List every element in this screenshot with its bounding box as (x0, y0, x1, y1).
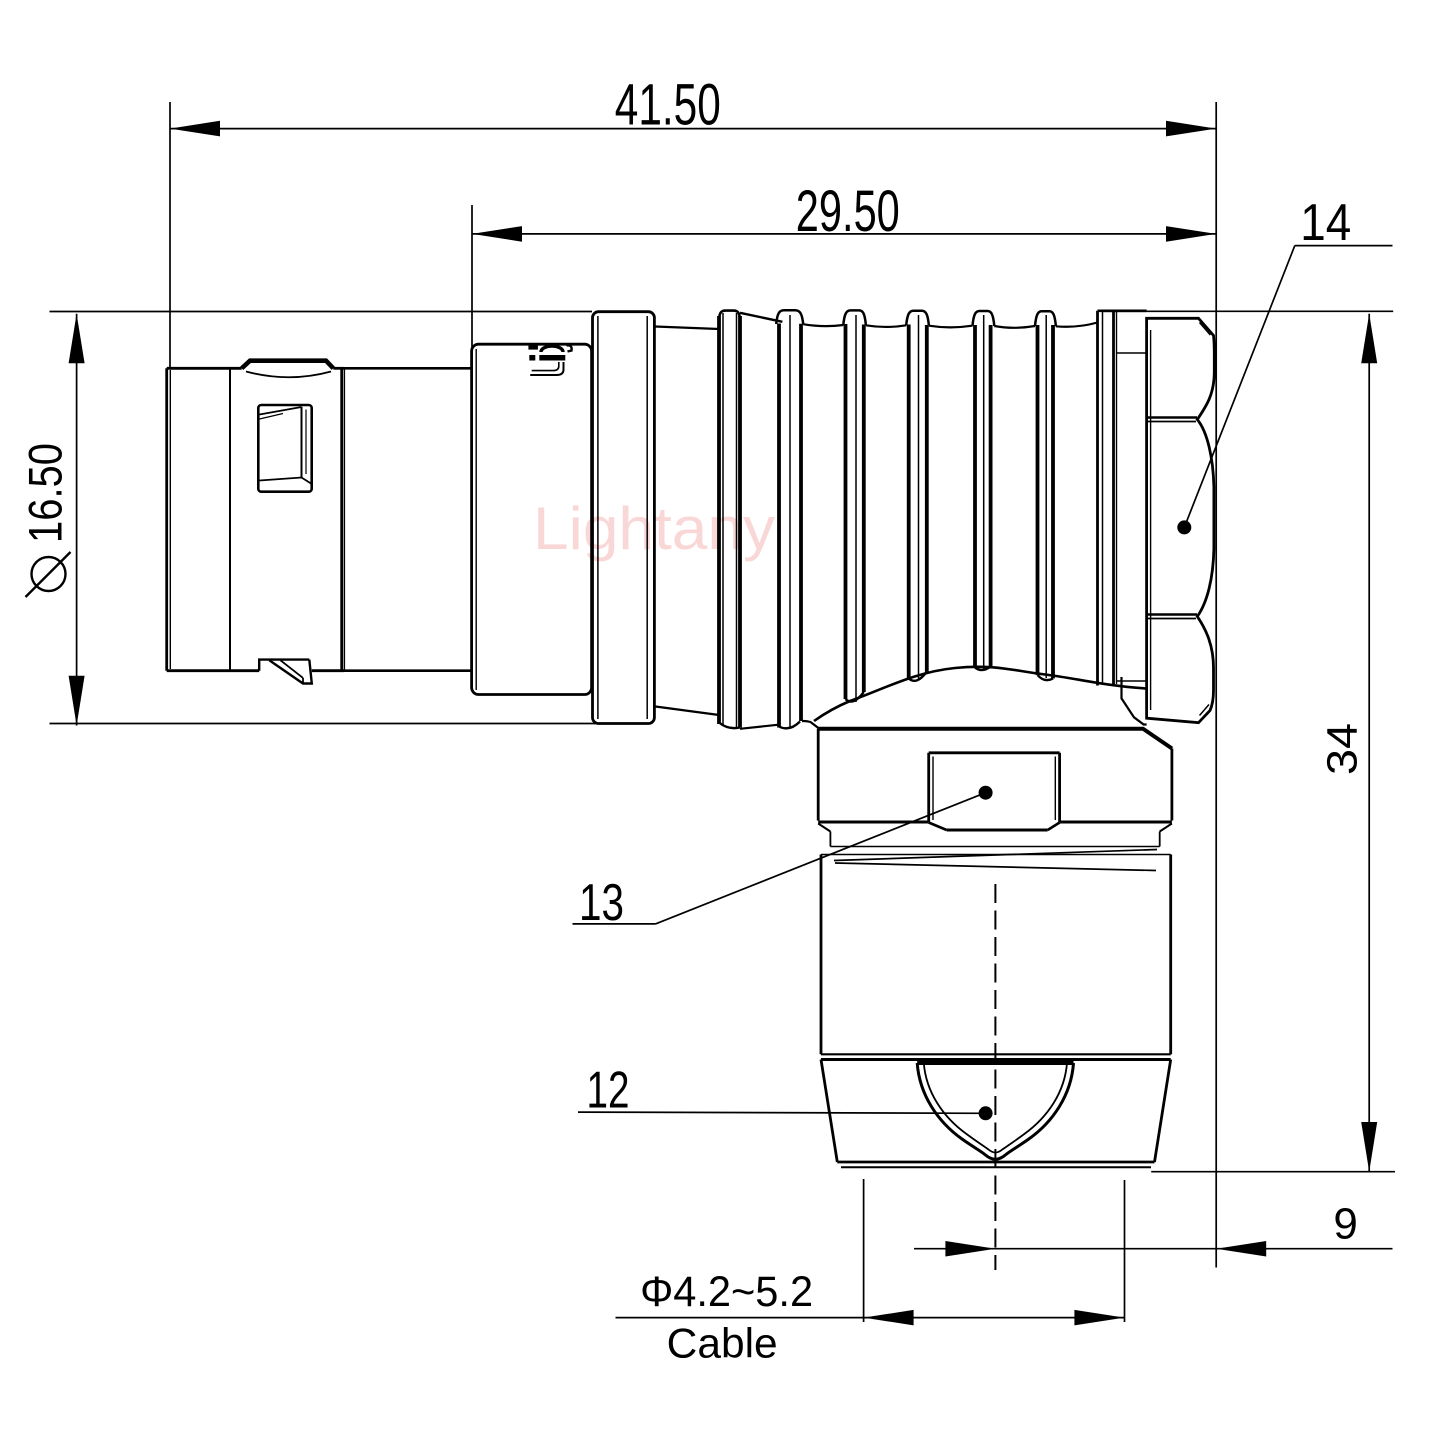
svg-text:12: 12 (587, 1062, 630, 1120)
svg-text:14: 14 (1300, 194, 1351, 252)
svg-text:Cable: Cable (667, 1320, 778, 1367)
svg-text:Φ4.2~5.2: Φ4.2~5.2 (640, 1268, 813, 1316)
svg-text:34: 34 (1319, 723, 1367, 775)
svg-text:41.50: 41.50 (615, 73, 721, 138)
svg-text:16.50: 16.50 (19, 443, 72, 543)
svg-text:13: 13 (579, 874, 624, 932)
svg-text:29.50: 29.50 (796, 179, 900, 244)
svg-text:9: 9 (1333, 1200, 1357, 1249)
